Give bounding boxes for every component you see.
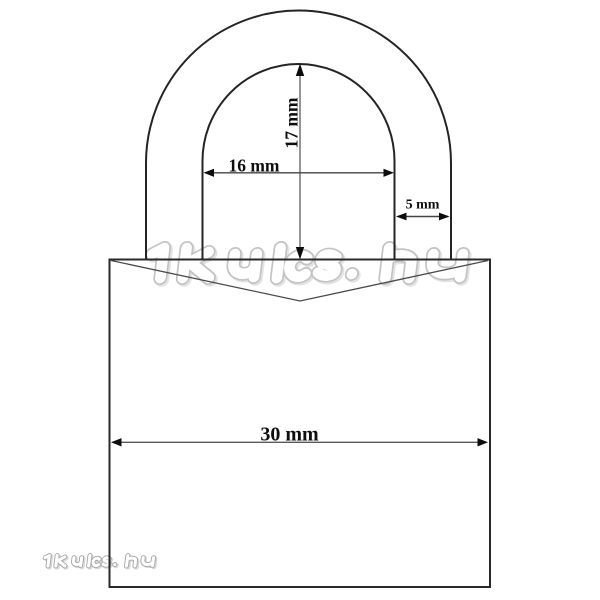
svg-text:5 mm: 5 mm	[406, 198, 440, 213]
svg-text:30 mm: 30 mm	[260, 424, 319, 446]
svg-text:16 mm: 16 mm	[228, 156, 279, 176]
svg-text:17 mm: 17 mm	[282, 97, 302, 148]
